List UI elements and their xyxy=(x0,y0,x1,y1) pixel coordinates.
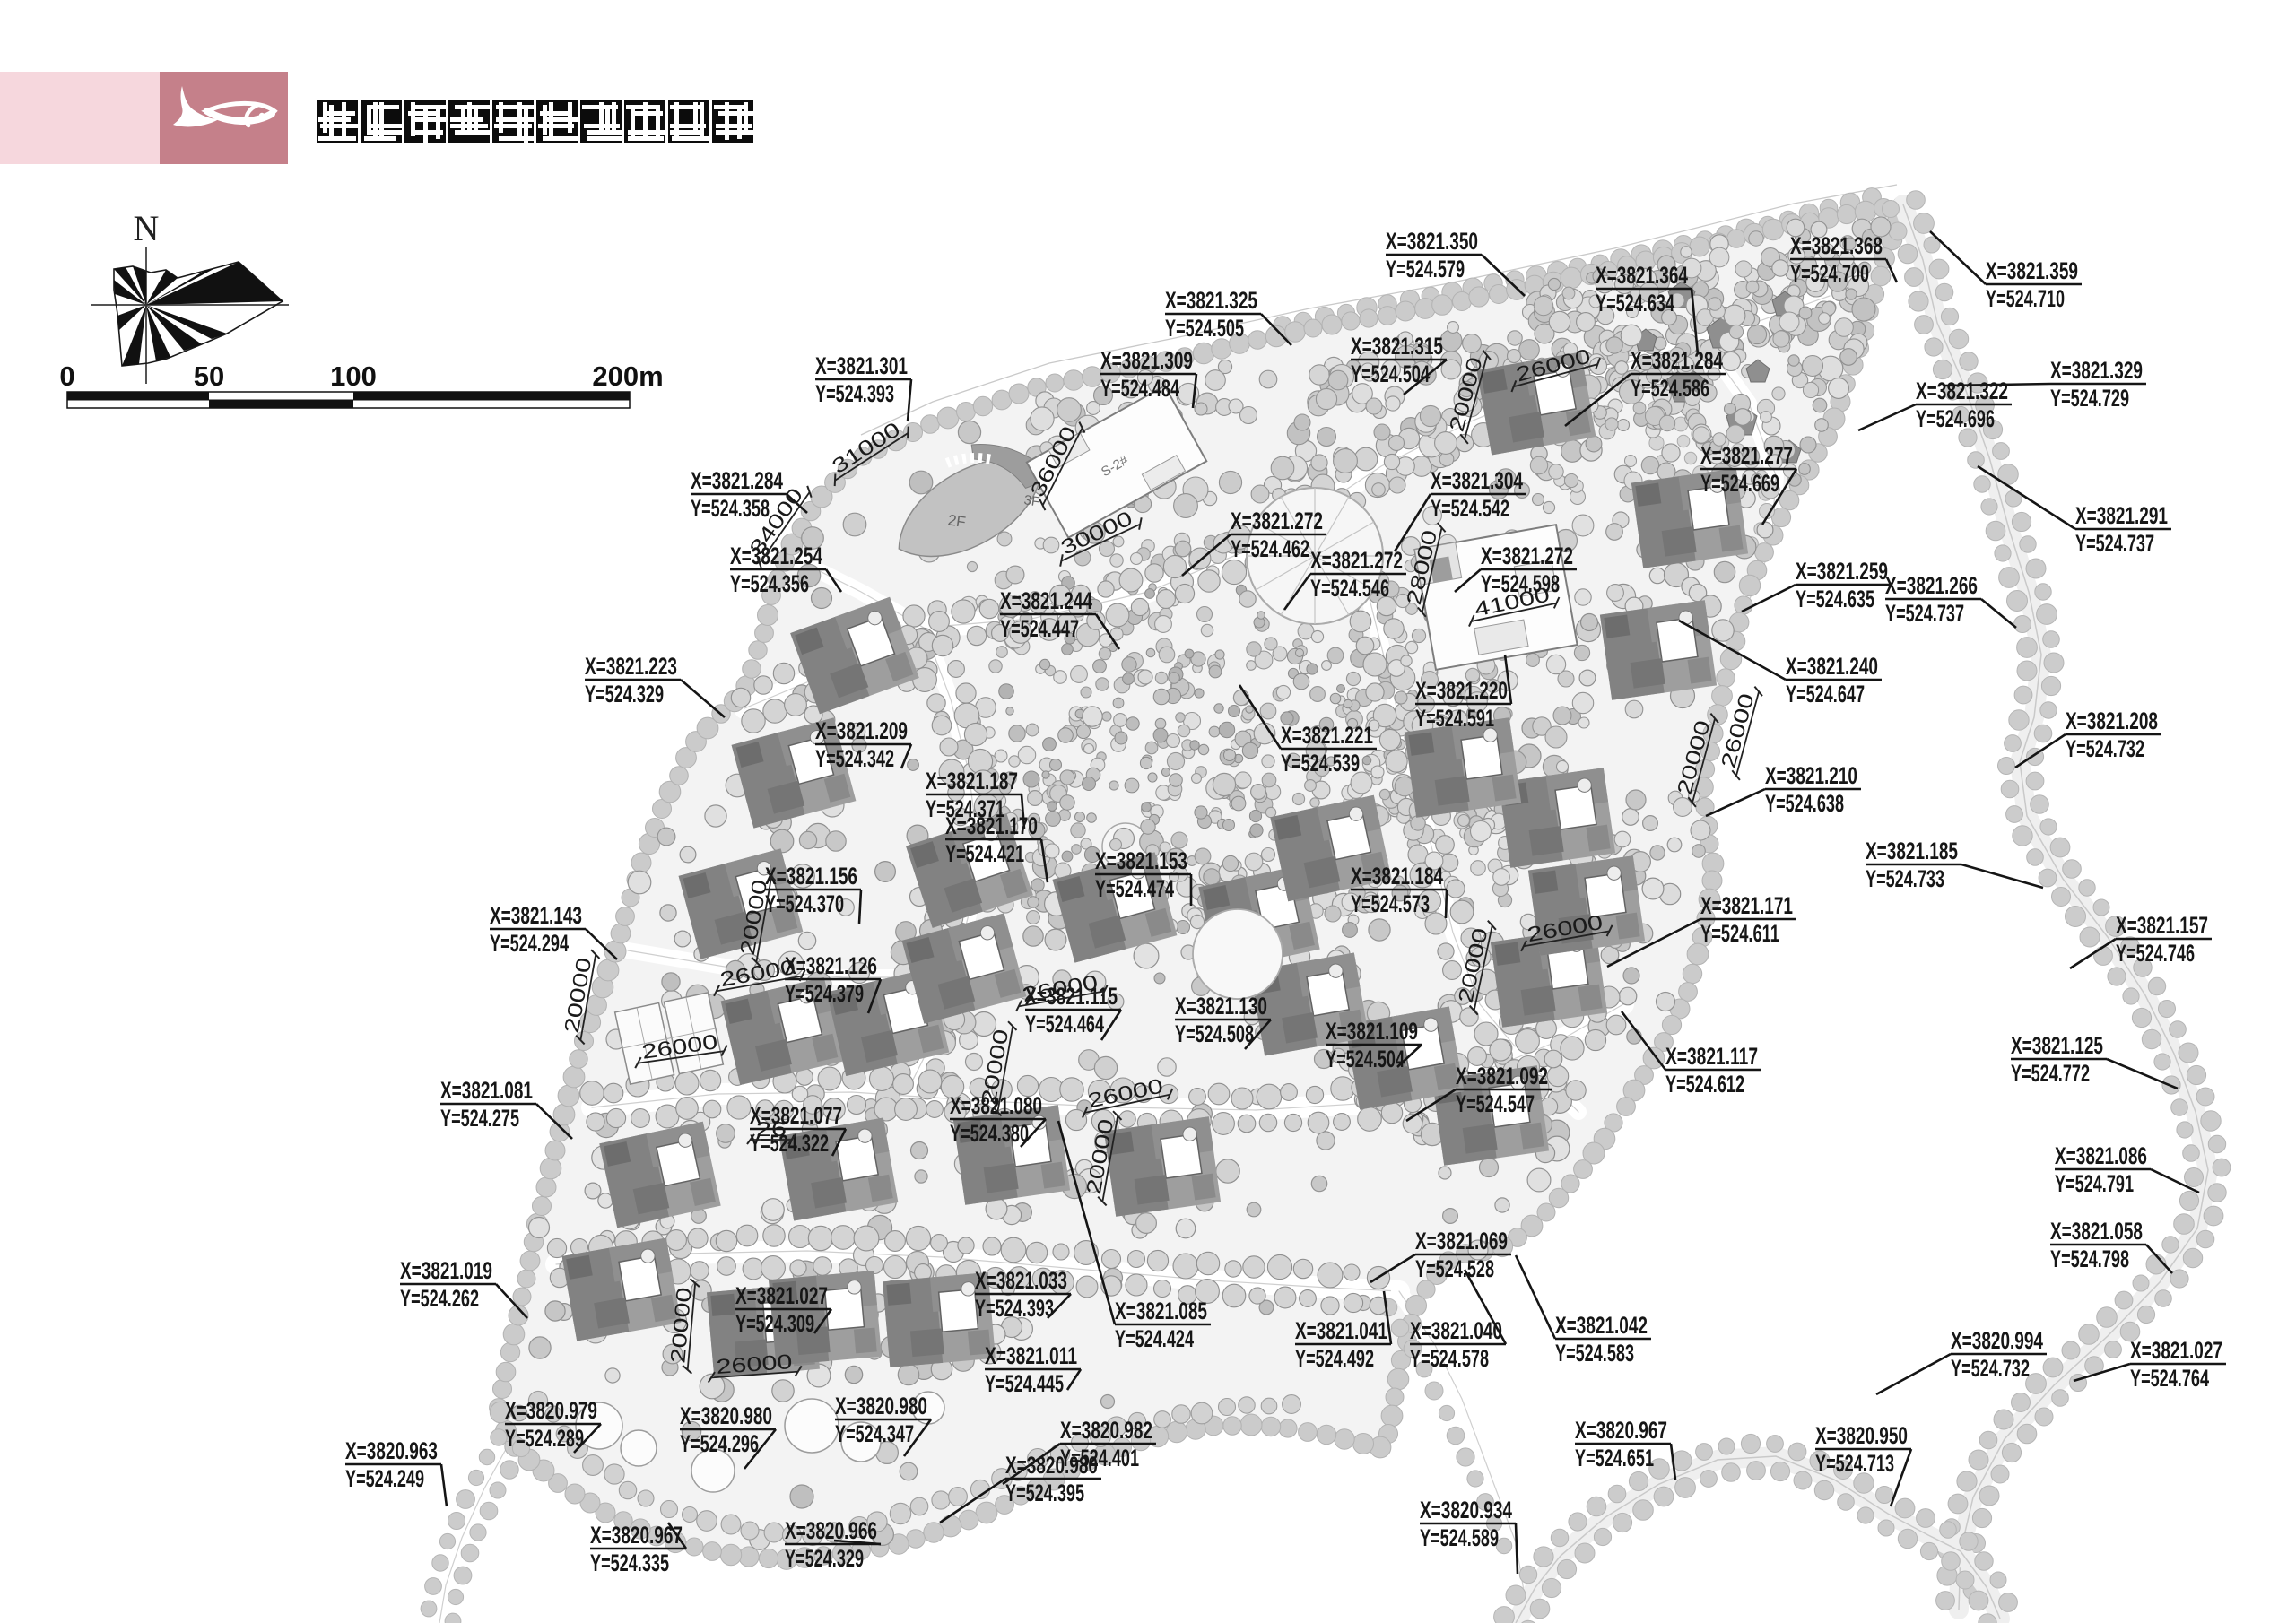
svg-text:Y=524.504: Y=524.504 xyxy=(1351,360,1430,387)
svg-text:Y=524.379: Y=524.379 xyxy=(785,980,864,1007)
svg-text:Y=524.732: Y=524.732 xyxy=(2066,735,2144,762)
svg-text:X=3821.092: X=3821.092 xyxy=(1456,1063,1548,1089)
svg-text:Y=524.669: Y=524.669 xyxy=(1700,470,1779,497)
svg-text:X=3821.011: X=3821.011 xyxy=(985,1342,1077,1369)
svg-text:Y=524.347: Y=524.347 xyxy=(835,1420,914,1447)
svg-text:X=3821.042: X=3821.042 xyxy=(1555,1312,1648,1339)
svg-text:X=3821.315: X=3821.315 xyxy=(1351,333,1443,360)
svg-text:Y=524.424: Y=524.424 xyxy=(1115,1325,1194,1352)
svg-text:X=3821.209: X=3821.209 xyxy=(815,717,908,744)
svg-text:X=3821.153: X=3821.153 xyxy=(1095,847,1187,874)
svg-text:2F: 2F xyxy=(947,511,967,531)
svg-text:Y=524.356: Y=524.356 xyxy=(730,570,809,597)
svg-text:X=3821.329: X=3821.329 xyxy=(2050,357,2143,384)
svg-text:X=3821.223: X=3821.223 xyxy=(585,653,677,680)
svg-text:Y=524.335: Y=524.335 xyxy=(590,1549,669,1576)
svg-text:X=3821.085: X=3821.085 xyxy=(1115,1298,1207,1324)
svg-text:X=3821.244: X=3821.244 xyxy=(1000,587,1092,614)
svg-text:Y=524.746: Y=524.746 xyxy=(2116,940,2195,967)
svg-text:Y=524.370: Y=524.370 xyxy=(765,890,844,917)
svg-text:Y=524.737: Y=524.737 xyxy=(2075,530,2154,557)
svg-text:Y=524.249: Y=524.249 xyxy=(345,1465,424,1492)
svg-text:X=3820.966: X=3820.966 xyxy=(785,1517,877,1544)
svg-text:Y=524.772: Y=524.772 xyxy=(2011,1060,2090,1087)
svg-text:X=3821.130: X=3821.130 xyxy=(1175,993,1267,1020)
svg-text:X=3821.033: X=3821.033 xyxy=(975,1267,1067,1294)
svg-text:X=3821.109: X=3821.109 xyxy=(1326,1018,1418,1045)
svg-text:Y=524.791: Y=524.791 xyxy=(2055,1170,2134,1197)
svg-text:X=3821.309: X=3821.309 xyxy=(1100,347,1193,374)
svg-text:50: 50 xyxy=(194,360,224,392)
svg-text:X=3821.019: X=3821.019 xyxy=(400,1257,492,1284)
svg-text:Y=524.539: Y=524.539 xyxy=(1281,750,1360,777)
svg-text:Y=524.528: Y=524.528 xyxy=(1415,1255,1494,1282)
svg-text:Y=524.296: Y=524.296 xyxy=(680,1430,759,1457)
svg-text:Y=524.737: Y=524.737 xyxy=(1885,600,1964,627)
svg-text:X=3821.187: X=3821.187 xyxy=(926,768,1018,794)
svg-text:X=3821.284: X=3821.284 xyxy=(691,467,783,494)
svg-text:X=3821.184: X=3821.184 xyxy=(1351,863,1443,890)
svg-text:X=3821.171: X=3821.171 xyxy=(1700,892,1793,919)
svg-text:Y=524.464: Y=524.464 xyxy=(1025,1011,1104,1037)
svg-text:Y=524.289: Y=524.289 xyxy=(505,1425,584,1452)
svg-text:X=3821.364: X=3821.364 xyxy=(1596,262,1688,289)
svg-text:X=3820.963: X=3820.963 xyxy=(345,1437,438,1464)
svg-text:X=3821.301: X=3821.301 xyxy=(815,352,908,379)
svg-text:X=3821.272: X=3821.272 xyxy=(1310,547,1403,574)
svg-text:X=3820.934: X=3820.934 xyxy=(1420,1497,1512,1523)
svg-text:X=3821.221: X=3821.221 xyxy=(1281,722,1373,749)
svg-text:Y=524.732: Y=524.732 xyxy=(1951,1355,2030,1382)
svg-text:X=3820.950: X=3820.950 xyxy=(1815,1422,1908,1449)
svg-text:Y=524.696: Y=524.696 xyxy=(1916,405,1995,432)
svg-text:Y=524.393: Y=524.393 xyxy=(975,1295,1054,1322)
svg-text:Y=524.647: Y=524.647 xyxy=(1786,681,1865,707)
svg-text:X=3821.081: X=3821.081 xyxy=(440,1077,533,1104)
svg-text:Y=524.508: Y=524.508 xyxy=(1175,1020,1254,1047)
svg-text:Y=524.294: Y=524.294 xyxy=(490,930,569,957)
svg-text:Y=524.380: Y=524.380 xyxy=(950,1120,1029,1147)
svg-text:0: 0 xyxy=(59,360,74,392)
svg-text:X=3821.208: X=3821.208 xyxy=(2066,707,2158,734)
svg-text:Y=524.713: Y=524.713 xyxy=(1815,1450,1894,1477)
svg-text:X=3821.041: X=3821.041 xyxy=(1295,1317,1387,1344)
svg-text:Y=524.589: Y=524.589 xyxy=(1420,1524,1499,1551)
svg-text:Y=524.474: Y=524.474 xyxy=(1095,875,1174,902)
svg-text:Y=524.447: Y=524.447 xyxy=(1000,615,1079,642)
svg-text:X=3821.322: X=3821.322 xyxy=(1916,378,2008,404)
svg-text:Y=524.764: Y=524.764 xyxy=(2130,1365,2209,1392)
svg-text:X=3821.117: X=3821.117 xyxy=(1665,1043,1758,1070)
svg-text:X=3821.069: X=3821.069 xyxy=(1415,1228,1508,1254)
svg-text:Y=524.262: Y=524.262 xyxy=(400,1285,479,1312)
svg-text:X=3821.304: X=3821.304 xyxy=(1431,467,1523,494)
svg-text:X=3820.982: X=3820.982 xyxy=(1060,1417,1152,1444)
svg-text:X=3820.967: X=3820.967 xyxy=(1575,1417,1667,1444)
svg-text:Y=524.505: Y=524.505 xyxy=(1165,315,1244,342)
svg-text:X=3821.240: X=3821.240 xyxy=(1786,653,1878,680)
svg-text:X=3820.967: X=3820.967 xyxy=(590,1522,683,1549)
svg-text:X=3821.220: X=3821.220 xyxy=(1415,677,1508,704)
svg-text:26: 26 xyxy=(756,1117,787,1141)
svg-text:Y=524.395: Y=524.395 xyxy=(1005,1480,1084,1506)
svg-text:Y=524.579: Y=524.579 xyxy=(1386,256,1465,282)
svg-text:X=3821.259: X=3821.259 xyxy=(1796,558,1888,585)
svg-text:Y=524.484: Y=524.484 xyxy=(1100,375,1179,402)
svg-text:X=3821.359: X=3821.359 xyxy=(1986,257,2078,284)
svg-text:X=3821.185: X=3821.185 xyxy=(1865,838,1958,864)
svg-text:Y=524.798: Y=524.798 xyxy=(2050,1245,2129,1272)
svg-text:Y=524.504: Y=524.504 xyxy=(1326,1046,1405,1072)
svg-text:X=3821.027: X=3821.027 xyxy=(2130,1337,2222,1364)
svg-text:Y=524.573: Y=524.573 xyxy=(1351,890,1430,917)
svg-text:X=3821.325: X=3821.325 xyxy=(1165,287,1257,314)
svg-text:Y=524.329: Y=524.329 xyxy=(785,1545,864,1572)
svg-text:Y=524.542: Y=524.542 xyxy=(1431,495,1509,522)
svg-text:Y=524.393: Y=524.393 xyxy=(815,380,894,407)
svg-text:X=3820.980: X=3820.980 xyxy=(1005,1452,1098,1479)
svg-text:Y=524.342: Y=524.342 xyxy=(815,745,894,772)
svg-text:X=3821.143: X=3821.143 xyxy=(490,902,582,929)
svg-text:Y=524.651: Y=524.651 xyxy=(1575,1445,1654,1471)
svg-text:X=3821.277: X=3821.277 xyxy=(1700,442,1793,469)
svg-text:Y=524.700: Y=524.700 xyxy=(1790,260,1869,287)
svg-text:Y=524.612: Y=524.612 xyxy=(1665,1071,1744,1098)
svg-text:X=3821.284: X=3821.284 xyxy=(1631,347,1723,374)
svg-text:X=3821.027: X=3821.027 xyxy=(735,1282,828,1309)
svg-text:X=3820.980: X=3820.980 xyxy=(835,1393,927,1419)
svg-text:Y=524.329: Y=524.329 xyxy=(585,681,664,707)
svg-text:X=3821.058: X=3821.058 xyxy=(2050,1218,2143,1245)
svg-text:X=3821.350: X=3821.350 xyxy=(1386,228,1478,255)
svg-text:Y=524.546: Y=524.546 xyxy=(1310,575,1389,602)
svg-text:Y=524.710: Y=524.710 xyxy=(1986,285,2065,312)
svg-text:X=3821.126: X=3821.126 xyxy=(785,952,877,979)
svg-text:X=3821.157: X=3821.157 xyxy=(2116,912,2208,939)
svg-text:Y=524.611: Y=524.611 xyxy=(1700,920,1779,947)
svg-text:Y=524.638: Y=524.638 xyxy=(1765,790,1844,817)
svg-text:Y=524.729: Y=524.729 xyxy=(2050,385,2129,412)
svg-text:Y=524.635: Y=524.635 xyxy=(1796,586,1874,612)
svg-text:X=3821.170: X=3821.170 xyxy=(945,812,1038,839)
svg-text:Y=524.309: Y=524.309 xyxy=(735,1310,814,1337)
svg-text:Y=524.634: Y=524.634 xyxy=(1596,290,1674,317)
svg-text:Y=524.492: Y=524.492 xyxy=(1295,1345,1374,1372)
svg-text:Y=524.578: Y=524.578 xyxy=(1410,1345,1489,1372)
svg-text:Y=524.547: Y=524.547 xyxy=(1456,1090,1535,1117)
svg-text:X=3821.272: X=3821.272 xyxy=(1231,508,1323,534)
svg-text:X=3821.210: X=3821.210 xyxy=(1765,762,1857,789)
svg-text:100: 100 xyxy=(330,360,377,392)
svg-text:X=3821.368: X=3821.368 xyxy=(1790,232,1883,259)
svg-text:X=3821.272: X=3821.272 xyxy=(1481,542,1573,569)
svg-text:X=3820.979: X=3820.979 xyxy=(505,1397,597,1424)
svg-text:Y=524.275: Y=524.275 xyxy=(440,1105,519,1132)
svg-text:200m: 200m xyxy=(592,360,663,392)
svg-text:X=3820.980: X=3820.980 xyxy=(680,1402,772,1429)
svg-text:X=3821.040: X=3821.040 xyxy=(1410,1317,1502,1344)
svg-text:X=3820.994: X=3820.994 xyxy=(1951,1327,2043,1354)
svg-text:Y=524.586: Y=524.586 xyxy=(1631,375,1709,402)
svg-text:X=3821.291: X=3821.291 xyxy=(2075,502,2168,529)
svg-text:Y=524.591: Y=524.591 xyxy=(1415,705,1494,732)
svg-text:X=3821.254: X=3821.254 xyxy=(730,542,822,569)
svg-text:X=3821.266: X=3821.266 xyxy=(1885,572,1978,599)
svg-text:Y=524.733: Y=524.733 xyxy=(1865,865,1944,892)
svg-text:Y=524.358: Y=524.358 xyxy=(691,495,770,522)
svg-text:Y=524.445: Y=524.445 xyxy=(985,1370,1064,1397)
svg-text:X=3821.086: X=3821.086 xyxy=(2055,1142,2147,1169)
svg-text:Y=524.583: Y=524.583 xyxy=(1555,1340,1634,1367)
svg-text:N: N xyxy=(134,208,160,248)
svg-text:Y=524.462: Y=524.462 xyxy=(1231,535,1309,562)
svg-text:X=3821.156: X=3821.156 xyxy=(765,863,857,890)
svg-text:X=3821.125: X=3821.125 xyxy=(2011,1032,2103,1059)
svg-text:Y=524.421: Y=524.421 xyxy=(945,840,1024,867)
